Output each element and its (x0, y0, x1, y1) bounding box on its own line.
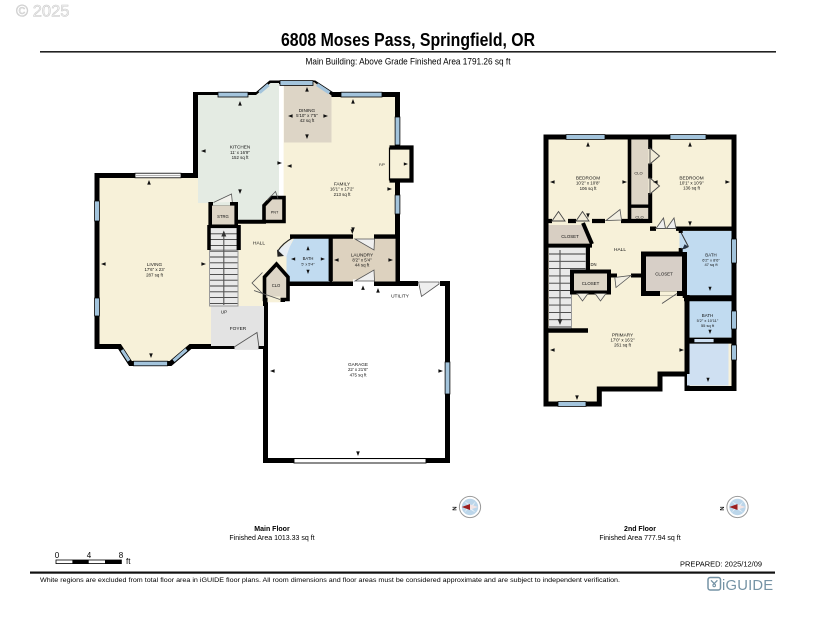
svg-text:Finished Area 1013.33 sq ft: Finished Area 1013.33 sq ft (229, 535, 314, 542)
svg-text:Finished Area 777.94 sq ft: Finished Area 777.94 sq ft (599, 535, 680, 542)
svg-text:106 sq ft: 106 sq ft (580, 186, 598, 191)
svg-text:CLOSET: CLOSET (561, 234, 579, 239)
svg-text:CLO: CLO (635, 215, 643, 220)
svg-text:44 sq ft: 44 sq ft (355, 263, 370, 268)
svg-text:BATH: BATH (303, 256, 314, 261)
svg-text:F/P: F/P (379, 163, 385, 167)
svg-text:47 sq ft: 47 sq ft (704, 262, 718, 267)
svg-text:261 sq ft: 261 sq ft (614, 343, 632, 348)
svg-text:6808 Moses Pass, Springfield,: 6808 Moses Pass, Springfield, OR (281, 29, 535, 50)
svg-text:Main Floor: Main Floor (254, 526, 290, 533)
svg-text:UP: UP (221, 310, 227, 315)
svg-text:PNT: PNT (271, 211, 279, 215)
svg-text:© 2025: © 2025 (16, 3, 69, 21)
svg-text:152 sq ft: 152 sq ft (232, 155, 250, 160)
svg-text:UTILITY: UTILITY (391, 294, 410, 300)
svg-text:8: 8 (119, 551, 124, 560)
svg-text:iGUIDE: iGUIDE (722, 578, 773, 594)
svg-text:4: 4 (87, 551, 92, 560)
svg-text:Main Building: Above Grade Fin: Main Building: Above Grade Finished Area… (306, 57, 511, 68)
svg-text:42 sq ft: 42 sq ft (300, 118, 315, 123)
svg-text:CLO: CLO (272, 283, 281, 288)
svg-text:White regions are excluded fro: White regions are excluded from total fl… (40, 577, 620, 584)
svg-text:N: N (453, 506, 459, 510)
svg-text:213 sq ft: 213 sq ft (334, 192, 352, 197)
svg-text:PREPARED: 2025/12/09: PREPARED: 2025/12/09 (680, 562, 762, 569)
svg-text:5' x 5'4": 5' x 5'4" (301, 263, 315, 267)
svg-text:475 sq ft: 475 sq ft (350, 372, 368, 377)
svg-text:136 sq ft: 136 sq ft (683, 185, 701, 190)
svg-text:CLO: CLO (634, 171, 642, 176)
svg-text:FOYER: FOYER (230, 326, 247, 332)
svg-text:287 sq ft: 287 sq ft (146, 272, 164, 277)
svg-text:CLOSET: CLOSET (655, 272, 673, 277)
svg-text:HALL: HALL (253, 241, 265, 247)
svg-text:DN: DN (590, 262, 596, 267)
svg-text:ft: ft (126, 557, 131, 566)
svg-text:HALL: HALL (614, 247, 626, 253)
svg-text:0: 0 (55, 551, 60, 560)
svg-text:STRG: STRG (217, 214, 229, 219)
svg-text:55 sq ft: 55 sq ft (701, 323, 715, 328)
svg-text:2nd Floor: 2nd Floor (624, 526, 656, 533)
svg-text:CLOSET: CLOSET (582, 281, 600, 286)
svg-text:N: N (720, 506, 726, 510)
